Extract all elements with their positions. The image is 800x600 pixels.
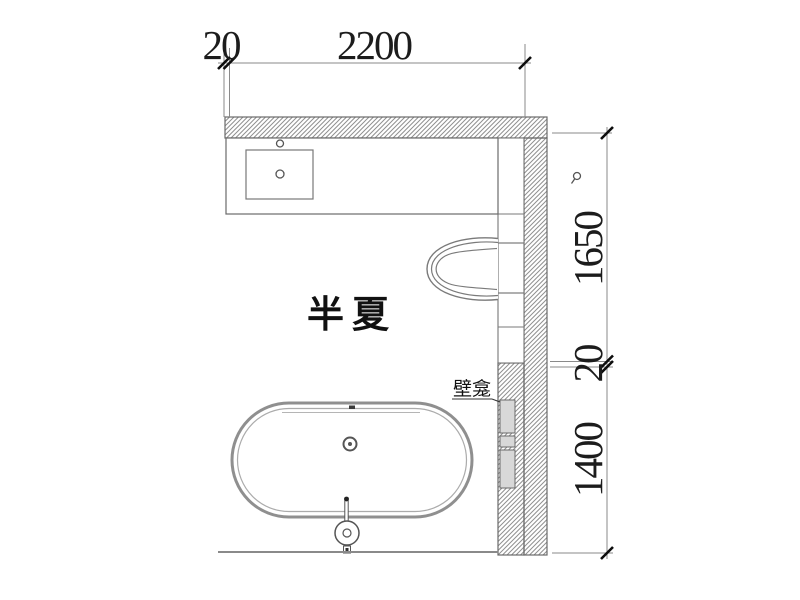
faucet-spout-tip	[344, 497, 349, 502]
faucet-base-ring	[335, 521, 359, 545]
faucet-hole	[277, 140, 284, 147]
floor-plan-canvas: 壁龛 20 2200	[0, 0, 800, 600]
dim-label-top-width: 2200	[337, 22, 412, 68]
wall-right-outer	[524, 138, 547, 555]
floor-plan-drawing: 壁龛 20 2200	[0, 0, 800, 600]
niche-label: 壁龛	[453, 378, 491, 400]
dimension-right: 1650 20 1400	[550, 127, 613, 559]
dim-label-right-gap: 20	[565, 345, 611, 383]
niche-block-1	[500, 400, 515, 433]
cad-marker-icon	[572, 173, 581, 184]
niche-block-2	[500, 436, 515, 447]
dim-label-right-upper: 1650	[565, 212, 611, 287]
bathtub-outer	[232, 403, 472, 517]
dimension-top: 20 2200	[203, 22, 532, 117]
project-title: 半夏	[307, 293, 397, 336]
niche-block-3	[500, 450, 515, 488]
dim-label-right-lower: 1400	[565, 423, 611, 498]
bathtub-drain-center	[348, 442, 352, 446]
pipe-shaft	[498, 138, 524, 363]
bathtub-overflow-mark	[349, 406, 355, 410]
dim-label-top-offset: 20	[203, 22, 241, 68]
sink-drain	[276, 170, 284, 178]
wall-top	[225, 117, 547, 138]
faucet-valve-center	[346, 548, 349, 551]
toilet-bowl-outer	[427, 238, 498, 300]
